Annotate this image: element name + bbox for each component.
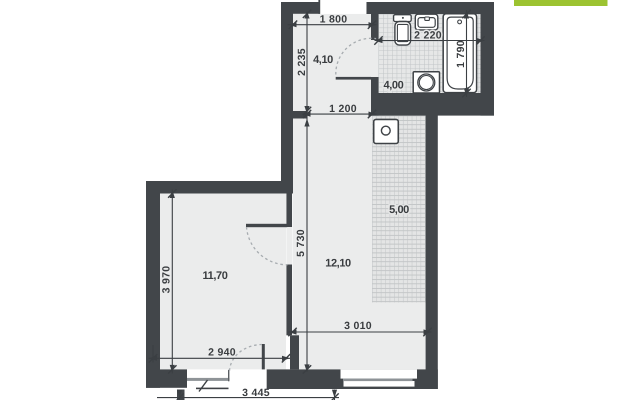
svg-text:3 970: 3 970 (161, 266, 173, 294)
svg-text:2 220: 2 220 (414, 29, 442, 41)
svg-text:5 730: 5 730 (295, 229, 307, 257)
svg-text:1 790: 1 790 (455, 40, 467, 68)
svg-text:1 200: 1 200 (329, 103, 357, 115)
svg-text:11,70: 11,70 (203, 270, 228, 282)
svg-text:3 010: 3 010 (344, 320, 372, 332)
svg-text:2 235: 2 235 (296, 48, 308, 76)
svg-text:2 940: 2 940 (208, 347, 236, 359)
svg-text:4,10: 4,10 (313, 54, 333, 66)
svg-text:4,00: 4,00 (383, 79, 403, 91)
svg-text:5,00: 5,00 (389, 204, 409, 216)
svg-text:12,10: 12,10 (325, 258, 351, 270)
svg-text:1 800: 1 800 (320, 14, 348, 26)
svg-text:3 445: 3 445 (242, 387, 270, 399)
